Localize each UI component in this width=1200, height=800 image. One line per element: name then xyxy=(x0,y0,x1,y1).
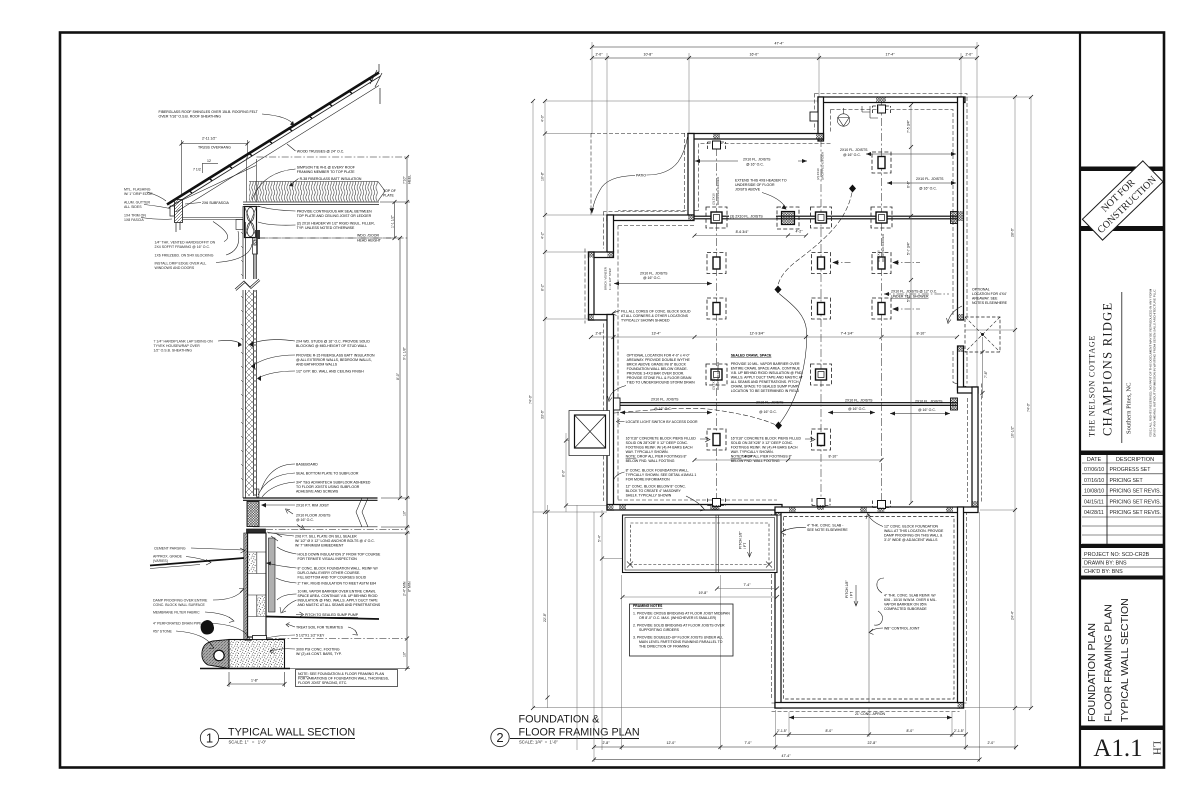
svg-text:6X6 - 10/10 W.W.M. OVER 6 MIL.: 6X6 - 10/10 W.W.M. OVER 6 MIL. xyxy=(884,598,937,602)
svg-text:FOR TERMITE VISUAL INSPECTION: FOR TERMITE VISUAL INSPECTION xyxy=(298,557,358,561)
svg-text:PRICING SET REVIS.: PRICING SET REVIS. xyxy=(1110,510,1162,516)
svg-text:2'-4" MIN: 2'-4" MIN xyxy=(403,581,407,596)
svg-text:CEMENT PARGING: CEMENT PARGING xyxy=(154,547,186,551)
svg-text:FOUNDATION WALL BELOW GRADE.: FOUNDATION WALL BELOW GRADE. xyxy=(627,367,688,371)
svg-text:6'-6": 6'-6" xyxy=(907,180,911,188)
svg-text:MEMBRANE FILTER FABRIC: MEMBRANE FILTER FABRIC xyxy=(153,611,200,615)
svg-text:DESCRIPTION: DESCRIPTION xyxy=(1116,457,1154,463)
svg-text:5'-7 3/4": 5'-7 3/4" xyxy=(907,241,911,255)
svg-text:7 1/2: 7 1/2 xyxy=(193,168,201,172)
svg-text:NOTE: DROP ALL PIER FOOTINGS 8: NOTE: DROP ALL PIER FOOTINGS 8" xyxy=(731,455,793,459)
svg-text:TRUSS OVERHANG: TRUSS OVERHANG xyxy=(198,146,231,150)
svg-text:7'-0": 7'-0" xyxy=(745,741,753,745)
svg-text:8'-10": 8'-10" xyxy=(917,332,927,336)
svg-text:5 1/2"X1 1/2" KEY: 5 1/2"X1 1/2" KEY xyxy=(296,634,325,638)
svg-text:21' CONC. APRON: 21' CONC. APRON xyxy=(855,712,886,716)
svg-text:BLOCK TO CREATE 4" MASONRY: BLOCK TO CREATE 4" MASONRY xyxy=(626,489,682,493)
svg-text:SHELF, TYPICALLY SHOWN: SHELF, TYPICALLY SHOWN xyxy=(626,494,672,498)
svg-text:13'-4": 13'-4" xyxy=(652,332,662,336)
svg-text:BELOW FND. WALL FOOTING: BELOW FND. WALL FOOTING xyxy=(731,459,780,463)
svg-text:8'-0": 8'-0" xyxy=(562,469,566,477)
svg-text:DUR-O-WAL EVERY OTHER COURSE.: DUR-O-WAL EVERY OTHER COURSE. xyxy=(298,571,361,575)
svg-text:74'-0": 74'-0" xyxy=(1027,402,1031,412)
svg-text:4'-0": 4'-0" xyxy=(541,114,545,122)
svg-text:@ 16" O.C.: @ 16" O.C. xyxy=(843,153,861,157)
svg-text:10 MIL VAPOR BARRIER OVER ENTI: 10 MIL VAPOR BARRIER OVER ENTIRE CRAWL xyxy=(298,590,376,594)
svg-text:8" CONC. BLOCK FOUNDATION WALL: 8" CONC. BLOCK FOUNDATION WALL. xyxy=(626,469,690,473)
svg-text:BASEBOARD: BASEBOARD xyxy=(296,463,318,467)
svg-text:22'-8": 22'-8" xyxy=(543,612,547,622)
svg-text:28'-6": 28'-6" xyxy=(1011,227,1015,237)
svg-text:4'-2": 4'-2" xyxy=(541,231,545,239)
svg-text:R-38 FIBERGLASS BATT INSULATIO: R-38 FIBERGLASS BATT INSULATION xyxy=(300,177,362,181)
svg-text:WAY. TYPICALLY SHOWN.: WAY. TYPICALLY SHOWN. xyxy=(626,450,669,454)
svg-text:THE DIRECTION OF FRAMING: THE DIRECTION OF FRAMING xyxy=(639,645,689,649)
svg-text:04/28/11: 04/28/11 xyxy=(1084,510,1104,516)
svg-text:2X10 FL. JOISTS: 2X10 FL. JOISTS xyxy=(651,398,679,402)
svg-text:PRICING SET: PRICING SET xyxy=(1110,478,1144,484)
svg-text:1X8 FASCIA: 1X8 FASCIA xyxy=(124,218,144,222)
svg-text:ENTIRE CRAWL SPACE AREA. CONTI: ENTIRE CRAWL SPACE AREA. CONTINUE xyxy=(731,367,801,371)
svg-text:DROPPED GIRDER: DROPPED GIRDER xyxy=(716,176,720,205)
svg-text:4" PERFORATED DRAIN PIPE: 4" PERFORATED DRAIN PIPE xyxy=(153,622,202,626)
svg-text:10": 10" xyxy=(403,510,407,516)
svg-text:19'-8": 19'-8" xyxy=(699,591,709,595)
svg-text:TYVEK HOUSEWRAP OVER: TYVEK HOUSEWRAP OVER xyxy=(154,344,201,348)
svg-text:NOTE: SEE FOUNDATION & FLOOR F: NOTE: SEE FOUNDATION & FLOOR FRAMING PLA… xyxy=(298,672,385,676)
svg-text:APPROX. GRADE: APPROX. GRADE xyxy=(153,555,183,559)
svg-text:MTL. FLASHING: MTL. FLASHING xyxy=(124,188,151,192)
svg-text:SPACE AREA. CONTINUE V.B. UP B: SPACE AREA. CONTINUE V.B. UP BEHIND RIGI… xyxy=(298,594,379,598)
svg-text:7'-6": 7'-6" xyxy=(984,370,988,378)
svg-text:9'-1 1/8": 9'-1 1/8" xyxy=(403,346,407,360)
svg-text:CRAWL SPACE TO SEALED SUMP PUM: CRAWL SPACE TO SEALED SUMP PUMP. xyxy=(731,385,799,389)
svg-text:SEAL BOTTOM PLATE TO SUBFLOOR: SEAL BOTTOM PLATE TO SUBFLOOR xyxy=(296,472,359,476)
svg-text:12: 12 xyxy=(207,159,211,163)
svg-text:@ 16" O.C.: @ 16" O.C. xyxy=(919,187,937,191)
svg-text:5'-1": 5'-1" xyxy=(907,294,911,302)
svg-text:BRICK ABOVE GRADE IN/ 8" BLOCK: BRICK ABOVE GRADE IN/ 8" BLOCK xyxy=(627,363,687,367)
svg-text:07/16/10: 07/16/10 xyxy=(1084,478,1104,484)
svg-text:2X16 FL. JOISTS: 2X16 FL. JOISTS xyxy=(756,401,784,405)
svg-text:V.B. UP BEHIND RIGID INSULATIO: V.B. UP BEHIND RIGID INSULATION @ FND. xyxy=(731,371,803,375)
svg-text:PROVIDE R-15 FIBERGLASS BATT I: PROVIDE R-15 FIBERGLASS BATT INSULATION xyxy=(296,354,375,358)
svg-text:TYPICALLY SHOWN. SEE DETAIL #1: TYPICALLY SHOWN. SEE DETAIL #1M/A1.1 xyxy=(626,473,697,477)
svg-text:OPTIONAL: OPTIONAL xyxy=(972,288,990,292)
svg-text:MAIN LEVEL PARTITIONS RUNNING: MAIN LEVEL PARTITIONS RUNNING PARALLEL T… xyxy=(639,640,723,644)
svg-text:AT ALL CORNERS & OTHER LOCATIO: AT ALL CORNERS & OTHER LOCATIONS xyxy=(621,314,689,318)
svg-text:TYPICAL WALL SECTION: TYPICAL WALL SECTION xyxy=(1119,598,1131,722)
svg-text:HOLD DOWN INSULATION 3" FROM T: HOLD DOWN INSULATION 3" FROM TOP COURSE xyxy=(298,553,382,557)
svg-text:@ 16" O.C.: @ 16" O.C. xyxy=(643,276,661,280)
svg-text:2'-1.5": 2'-1.5" xyxy=(777,729,788,733)
svg-text:(2) 2X10: (2) 2X10 xyxy=(816,168,820,180)
svg-text:SEALED CRAWL SPACE: SEALED CRAWL SPACE xyxy=(731,354,772,358)
svg-text:SIMPSON TIE #H1 @ EVERY ROOF: SIMPSON TIE #H1 @ EVERY ROOF xyxy=(297,166,355,170)
svg-text:SCALE: 1" = 1'-0": SCALE: 1" = 1'-0" xyxy=(229,740,267,745)
svg-text:W/ 7" MINIMUM EMBEDMENT: W/ 7" MINIMUM EMBEDMENT xyxy=(295,544,344,548)
svg-text:2X10 FL. JOISTS: 2X10 FL. JOISTS xyxy=(915,400,943,404)
svg-text:2X6 SUBFASCIA: 2X6 SUBFASCIA xyxy=(202,201,230,205)
svg-text:7'-5 3/4": 7'-5 3/4" xyxy=(907,119,911,133)
svg-text:8'-6 3/4": 8'-6 3/4" xyxy=(736,230,750,234)
svg-text:VAPOR BARRIER ON 95%: VAPOR BARRIER ON 95% xyxy=(884,603,927,607)
svg-text:BLOCKING @ MID-HEIGHT OF STUD: BLOCKING @ MID-HEIGHT OF STUD WALL xyxy=(296,344,367,348)
svg-text:24'-4": 24'-4" xyxy=(1011,610,1015,620)
svg-text:ALUM. GUTTER: ALUM. GUTTER xyxy=(124,201,151,205)
svg-text:BRICK VENEER: BRICK VENEER xyxy=(604,266,608,290)
svg-text:W/ 1/2" Ø X 12" LONG ANCHOR BO: W/ 1/2" Ø X 12" LONG ANCHOR BOLTS @ 4' O… xyxy=(295,539,375,543)
svg-text:12'-0": 12'-0" xyxy=(667,741,677,745)
svg-text:4'-2": 4'-2" xyxy=(796,230,804,234)
svg-text:SUPPORTING GIRDERS: SUPPORTING GIRDERS xyxy=(639,628,680,632)
svg-text:TREAT SOIL FOR TERMITES: TREAT SOIL FOR TERMITES xyxy=(296,626,344,630)
svg-text:2X4 WD. STUDS @ 16" O.C. PROVI: 2X4 WD. STUDS @ 16" O.C. PROVIDE SOLID xyxy=(296,340,370,344)
svg-text:OVER 7/16" O.S.B. ROOF SHEATHI: OVER 7/16" O.S.B. ROOF SHEATHING xyxy=(159,115,222,119)
svg-text:3. PROVIDE DOUBLED-UP FLOOR J: 3. PROVIDE DOUBLED-UP FLOOR JOISTS UNDER… xyxy=(633,636,723,640)
svg-text:2'-0": 2'-0" xyxy=(966,53,974,57)
svg-text:LH: LH xyxy=(1151,741,1162,755)
svg-text:10'-8": 10'-8" xyxy=(541,171,545,181)
svg-text:TYP. UNLESS NOTED OTHERWISE: TYP. UNLESS NOTED OTHERWISE xyxy=(297,226,355,230)
svg-text:8" MIN: 8" MIN xyxy=(408,581,412,592)
svg-text:WDO. /DOOR: WDO. /DOOR xyxy=(357,234,379,238)
svg-text:2X10 FL. JOISTS: 2X10 FL. JOISTS xyxy=(640,272,668,276)
svg-text:FOR VARIATIONS OF FOUNDATION W: FOR VARIATIONS OF FOUNDATION WALL THICKN… xyxy=(298,677,389,681)
svg-text:74'-0": 74'-0" xyxy=(529,394,533,404)
svg-text:W/ (2) #4 CONT. BARS, TYP.: W/ (2) #4 CONT. BARS, TYP. xyxy=(296,652,342,656)
svg-text:DAMP PROOFING OVER ENTIRE: DAMP PROOFING OVER ENTIRE xyxy=(153,599,208,603)
svg-text:1/2" O.S.B. SHEATHING: 1/2" O.S.B. SHEATHING xyxy=(154,349,193,353)
svg-text:16'-1/2": 16'-1/2" xyxy=(1011,425,1015,438)
svg-text:BELOW FND. WALL FOOTING: BELOW FND. WALL FOOTING xyxy=(626,459,675,463)
svg-text:8'-0": 8'-0" xyxy=(396,372,400,380)
svg-text:7'10": 7'10" xyxy=(403,175,407,184)
svg-text:EXTEND THIS 4X8 HEADER TO: EXTEND THIS 4X8 HEADER TO xyxy=(735,179,787,183)
svg-text:04/15/11: 04/15/11 xyxy=(1084,499,1104,505)
svg-text:PROVIDE CONTINUOUS AIR SEAL BE: PROVIDE CONTINUOUS AIR SEAL BETWEEN xyxy=(297,210,372,214)
svg-text:7'-4": 7'-4" xyxy=(744,583,752,587)
svg-text:UNDERSIDE OF FLOOR: UNDERSIDE OF FLOOR xyxy=(735,183,775,187)
svg-text:AND BATHROOM WALLS: AND BATHROOM WALLS xyxy=(296,363,338,367)
svg-text:ALL SIDES: ALL SIDES xyxy=(124,205,142,209)
svg-text:PITCH TO SEALED SUMP PUMP: PITCH TO SEALED SUMP PUMP xyxy=(305,613,359,617)
svg-text:DATE: DATE xyxy=(1087,457,1102,463)
svg-text:OPTIONAL LOCATION FOR 4'-0" x: OPTIONAL LOCATION FOR 4'-0" x 4'-0" xyxy=(627,354,691,358)
svg-text:(VARIES): (VARIES) xyxy=(153,559,168,563)
svg-text:3'-0" WIDE @ ADJACENT WALLS: 3'-0" WIDE @ ADJACENT WALLS xyxy=(884,538,938,542)
svg-text:#57 STONE: #57 STONE xyxy=(153,630,172,634)
svg-text:PLATE: PLATE xyxy=(383,194,394,198)
svg-text:PROGRESS SET: PROGRESS SET xyxy=(1110,467,1152,473)
svg-text:TYPICAL WALL SECTION: TYPICAL WALL SECTION xyxy=(228,726,355,738)
svg-text:8'-0": 8'-0" xyxy=(826,729,834,733)
svg-text:AND MASTIC AT ALL SEAMS AND PE: AND MASTIC AT ALL SEAMS AND PENETRATIONS xyxy=(298,603,381,607)
svg-text:PROVIDE STONE FILL & FLOOR DRA: PROVIDE STONE FILL & FLOOR DRAIN xyxy=(627,376,692,380)
svg-text:2X10 FL. JOISTS @ 12" O.C.: 2X10 FL. JOISTS @ 12" O.C. xyxy=(891,290,937,294)
svg-text:COMPACTED SUBGRADE: COMPACTED SUBGRADE xyxy=(884,607,927,611)
svg-text:OR 8'-0" O.C. MAX. (WHICHEVER: OR 8'-0" O.C. MAX. (WHICHEVER IS SMALLER… xyxy=(639,616,716,620)
svg-text:2X6 P.T. SILL PLATE ON SILL SE: 2X6 P.T. SILL PLATE ON SILL SEALER xyxy=(295,535,357,539)
svg-text:5'-4": 5'-4" xyxy=(598,534,602,542)
svg-text:8'-0": 8'-0" xyxy=(907,729,915,733)
svg-text:(2) 2X10: (2) 2X10 xyxy=(712,193,716,205)
svg-text:DROPPED GIRDER: DROPPED GIRDER xyxy=(821,151,825,180)
svg-text:2X10 FL. JOISTS: 2X10 FL. JOISTS xyxy=(840,148,868,152)
svg-text:@ 16" O.C.: @ 16" O.C. xyxy=(848,407,866,411)
svg-text:WALL AT THIS LOCATION. PROVIDE: WALL AT THIS LOCATION. PROVIDE xyxy=(884,529,944,533)
svg-text:WOOD TRUSSES @ 24" O.C.: WOOD TRUSSES @ 24" O.C. xyxy=(297,150,345,154)
svg-text:7'-4 1/4": 7'-4 1/4" xyxy=(841,332,855,336)
svg-text:2X10 P.T. RIM JOIST: 2X10 P.T. RIM JOIST xyxy=(296,504,330,508)
svg-text:TIED TO UNDERGROUND STORM DRAI: TIED TO UNDERGROUND STORM DRAIN xyxy=(627,381,696,385)
svg-text:LOCATE LIGHT SWITCH BY ACCESS: LOCATE LIGHT SWITCH BY ACCESS DOOR xyxy=(626,420,698,424)
svg-text:2'-1.5": 2'-1.5" xyxy=(954,729,965,733)
svg-text:1X4 TRIM ON: 1X4 TRIM ON xyxy=(124,214,146,218)
svg-text:PITCH 1/8": PITCH 1/8" xyxy=(845,580,849,598)
svg-text:FIBERGLASS ROOF SHINGLES OVER: FIBERGLASS ROOF SHINGLES OVER 15LB. ROOF… xyxy=(159,110,259,114)
svg-text:22'-8": 22'-8" xyxy=(868,741,878,745)
svg-text:JOISTS ABOVE: JOISTS ABOVE xyxy=(735,188,761,192)
svg-text:FLOOR JOIST SPACING, ETC.: FLOOR JOIST SPACING, ETC. xyxy=(298,681,347,685)
svg-text:@ ALL EXTERIOR WALLS, BEDROOM: @ ALL EXTERIOR WALLS, BEDROOM WALLS, xyxy=(296,358,372,362)
svg-text:SEE NOTE ELSEWHERE: SEE NOTE ELSEWHERE xyxy=(807,528,848,532)
svg-text:DAMP PROOFING ON THIS WALL &: DAMP PROOFING ON THIS WALL & xyxy=(884,534,943,538)
svg-text:CHK'D BY: BNS: CHK'D BY: BNS xyxy=(1084,569,1123,575)
svg-text:AREAWAY. PROVIDE DOUBLE WYTHE: AREAWAY. PROVIDE DOUBLE WYTHE xyxy=(627,358,691,362)
svg-text:FOOTINGS REINF. W/ (4) #4 BARS: FOOTINGS REINF. W/ (4) #4 BARS EACH xyxy=(626,446,693,450)
svg-text:16"X16" CONCRETE BLOCK PIERS F: 16"X16" CONCRETE BLOCK PIERS FILLED xyxy=(731,437,802,441)
svg-text:FILL ALL CORES OF CONC. BLOCK: FILL ALL CORES OF CONC. BLOCK SOLID xyxy=(621,310,691,314)
svg-text:3000 PSI CONC. FOOTING: 3000 PSI CONC. FOOTING xyxy=(296,648,340,652)
svg-text:LOCATION FOR 4'X4': LOCATION FOR 4'X4' xyxy=(972,292,1007,296)
svg-text:WALLS. APPLY DUCT TAPE AND MAS: WALLS. APPLY DUCT TAPE AND MASTIC AT xyxy=(731,376,804,380)
svg-text:W8" CONTROL JOINT: W8" CONTROL JOINT xyxy=(884,627,920,631)
svg-text:12" CONC. BLOCK FOUNDATION: 12" CONC. BLOCK FOUNDATION xyxy=(884,525,939,529)
svg-text:@ 16" O.C.: @ 16" O.C. xyxy=(918,408,936,412)
svg-text:10/08/10: 10/08/10 xyxy=(1084,489,1104,495)
svg-text:47'-4": 47'-4" xyxy=(782,754,792,758)
svg-text:2X4 SOFFIT FRAMING @ 16" O.C.: 2X4 SOFFIT FRAMING @ 16" O.C. xyxy=(155,245,211,249)
svg-text:1'-1 1/2": 1'-1 1/2" xyxy=(391,214,395,228)
svg-text:ALL SEAMS AND PENETRATIONS. PI: ALL SEAMS AND PENETRATIONS. PITCH xyxy=(731,380,799,384)
svg-text:2. PROVIDE SOLID BRIDGING AT: 2. PROVIDE SOLID BRIDGING AT FLOOR JOIST… xyxy=(633,624,725,628)
svg-text:PROJECT NO: SCD-CR2B: PROJECT NO: SCD-CR2B xyxy=(1084,552,1150,558)
svg-text:1: 1 xyxy=(206,731,213,746)
svg-text:2'-8": 2'-8" xyxy=(596,332,604,336)
svg-text:17'-4": 17'-4" xyxy=(886,53,896,57)
svg-text:2: 2 xyxy=(496,730,503,745)
svg-text:CHAMPIONS RIDGE: CHAMPIONS RIDGE xyxy=(1101,302,1115,436)
svg-text:OR BY ANY MEANS, WITHOUT PERMI: OR BY ANY MEANS, WITHOUT PERMISSION IN W… xyxy=(1153,289,1157,437)
svg-text:2X10 FL. JOISTS: 2X10 FL. JOISTS xyxy=(916,177,944,181)
svg-text:DROPPED GIRDER: DROPPED GIRDER xyxy=(881,233,885,262)
svg-text:07/06/10: 07/06/10 xyxy=(1084,467,1104,473)
svg-text:(3) 2X10 FL. JOISTS: (3) 2X10 FL. JOISTS xyxy=(730,215,763,219)
svg-text:DROPPED GIRDER: DROPPED GIRDER xyxy=(716,361,720,390)
svg-text:12'-9 3/4": 12'-9 3/4" xyxy=(750,332,766,336)
svg-text:(2) 2X10 HEADER W/ 1/2" RIGID: (2) 2X10 HEADER W/ 1/2" RIGID INSUL. FIL… xyxy=(297,222,375,226)
svg-text:PROVIDE 10 MIL. VAPOR BARRIER: PROVIDE 10 MIL. VAPOR BARRIER OVER xyxy=(731,362,800,366)
svg-text:WINDOWS AND DOORS: WINDOWS AND DOORS xyxy=(155,266,195,270)
svg-text:47'-4": 47'-4" xyxy=(775,42,785,46)
svg-text:SOLID ON 28"X28" X 12" DEEP CO: SOLID ON 28"X28" X 12" DEEP CONC. xyxy=(626,441,688,445)
svg-text:PROVIDE 3-4X3 BAR OVER DOOR.: PROVIDE 3-4X3 BAR OVER DOOR. xyxy=(627,372,685,376)
svg-text:FOOTINGS REINF. W/ (4) #4 BARS: FOOTINGS REINF. W/ (4) #4 BARS EACH xyxy=(731,446,798,450)
svg-text:TOP PLATE AND CEILING JOIST OR: TOP PLATE AND CEILING JOIST OR LEDGER xyxy=(297,214,372,218)
svg-text:FRAMING MEMBER TO TOP PLATE: FRAMING MEMBER TO TOP PLATE xyxy=(297,170,356,174)
svg-text:FLOOR FRAMING PLAN: FLOOR FRAMING PLAN xyxy=(1103,604,1115,722)
svg-text:SOLID ON 28"X28" X 12" DEEP CO: SOLID ON 28"X28" X 12" DEEP CONC. xyxy=(731,441,793,445)
svg-text:CONC. BLOCK WALL SURFACE: CONC. BLOCK WALL SURFACE xyxy=(153,603,206,607)
svg-text:A1.1: A1.1 xyxy=(1093,735,1142,762)
svg-text:10": 10" xyxy=(403,651,407,657)
svg-text:HEAD HEIGHT: HEAD HEIGHT xyxy=(357,239,382,243)
svg-text:@ 16" O.C.: @ 16" O.C. xyxy=(296,518,314,522)
svg-text:INSTALL DRIP EDGE OVER ALL: INSTALL DRIP EDGE OVER ALL xyxy=(155,262,207,266)
svg-text:AREAWAY. SEE: AREAWAY. SEE xyxy=(972,297,998,301)
svg-text:2X10 FLOOR JOISTS: 2X10 FLOOR JOISTS xyxy=(296,514,331,518)
svg-text:ADHESIVE AND SCREWS: ADHESIVE AND SCREWS xyxy=(296,490,339,494)
svg-text:TYPICALLY SHOWN SHADED: TYPICALLY SHOWN SHADED xyxy=(621,319,670,323)
svg-text:16"X16" CONCRETE BLOCK PIERS F: 16"X16" CONCRETE BLOCK PIERS FILLED xyxy=(626,437,697,441)
svg-text:SCALE: 1/4" = 1'-0": SCALE: 1/4" = 1'-0" xyxy=(519,740,558,745)
svg-text:FOUNDATION PLAN: FOUNDATION PLAN xyxy=(1086,623,1098,722)
svg-text:8'-10": 8'-10" xyxy=(829,455,839,459)
svg-text:FOR MORE INFORMATION: FOR MORE INFORMATION xyxy=(626,478,671,482)
svg-text:2" THK. RIGID INSULATION TO ME: 2" THK. RIGID INSULATION TO MEET ASTM E8… xyxy=(298,582,377,586)
svg-text:(2) 2X10: (2) 2X10 xyxy=(877,250,881,262)
svg-text:PITCH 1/8": PITCH 1/8" xyxy=(739,531,743,549)
svg-text:PRICING SET REVIS.: PRICING SET REVIS. xyxy=(1110,489,1162,495)
svg-text:1/4" THK. VENTED HARDISOFFIT O: 1/4" THK. VENTED HARDISOFFIT ON xyxy=(155,241,216,245)
svg-text:FILL BOTTOM AND TOP COURSES SO: FILL BOTTOM AND TOP COURSES SOLID xyxy=(298,576,367,580)
svg-text:FOUNDATION &: FOUNDATION & xyxy=(519,714,601,726)
svg-text:2'-8": 2'-8" xyxy=(603,741,611,745)
svg-text:TO FLOOR JOISTS USING SUBFLOOR: TO FLOOR JOISTS USING SUBFLOOR xyxy=(296,485,360,489)
svg-text:4" THK. CONC. SLAB -: 4" THK. CONC. SLAB - xyxy=(807,524,844,528)
svg-text:LOCATION TO BE DETERMINED IN F: LOCATION TO BE DETERMINED IN FIELD xyxy=(731,389,800,393)
svg-text:Southern Pines, NC: Southern Pines, NC xyxy=(1126,383,1133,434)
svg-text:TOP OF: TOP OF xyxy=(383,189,396,193)
svg-text:WAY. TYPICALLY SHOWN.: WAY. TYPICALLY SHOWN. xyxy=(731,450,774,454)
svg-text:1. PROVIDE CROSS BRIDGING AT: 1. PROVIDE CROSS BRIDGING AT FLOOR JOIST… xyxy=(633,612,730,616)
svg-text:NOTES ELSEWHERE: NOTES ELSEWHERE xyxy=(972,301,1008,305)
svg-text:1'-8": 1'-8" xyxy=(251,679,259,683)
svg-text:7 1/4" HARDIPLANK LAP SIDING O: 7 1/4" HARDIPLANK LAP SIDING ON xyxy=(154,340,214,344)
svg-text:12" CONC. BLOCK BELOW 8" CONC.: 12" CONC. BLOCK BELOW 8" CONC. xyxy=(626,485,686,489)
svg-text:33'-6": 33'-6" xyxy=(541,409,545,419)
svg-text:PRICING SET REVIS.: PRICING SET REVIS. xyxy=(1110,499,1162,505)
svg-text:@ 16" O.C.: @ 16" O.C. xyxy=(746,163,764,167)
svg-text:8'-2": 8'-2" xyxy=(541,283,545,291)
svg-text:THE NELSON COTTAGE: THE NELSON COTTAGE xyxy=(1088,335,1097,437)
svg-text:NOTE: DROP ALL PIER FOOTINGS 8: NOTE: DROP ALL PIER FOOTINGS 8" xyxy=(626,455,688,459)
svg-text:/ FT: / FT xyxy=(743,542,747,549)
svg-text:1/2" GYP. BD. WALL AND CEILING: 1/2" GYP. BD. WALL AND CEILING FINISH xyxy=(296,370,364,374)
svg-text:8" CONC. BLOCK FOUNDATION WALL: 8" CONC. BLOCK FOUNDATION WALL. REINF W/ xyxy=(298,567,378,571)
svg-text:1'-10 1/2" STEP: 1'-10 1/2" STEP xyxy=(608,268,612,290)
svg-text:4" THK. CONC. SLAB REINF. W/: 4" THK. CONC. SLAB REINF. W/ xyxy=(884,594,936,598)
svg-text:16'-0": 16'-0" xyxy=(750,53,760,57)
svg-text:@ 16" O.C.: @ 16" O.C. xyxy=(759,410,777,414)
svg-text:10'-8": 10'-8" xyxy=(644,53,654,57)
svg-text:INSULATION @ FND. WALLS. APPLY: INSULATION @ FND. WALLS. APPLY DUCT TAPE xyxy=(298,599,379,603)
svg-text:HEEL: HEEL xyxy=(408,175,412,184)
svg-text:2'-11 1/2": 2'-11 1/2" xyxy=(202,137,217,141)
svg-text:DRAWN BY: BNS: DRAWN BY: BNS xyxy=(1084,561,1127,567)
svg-text:3/4" T&G ADVANTECH SUBFLOOR AD: 3/4" T&G ADVANTECH SUBFLOOR ADHERED xyxy=(296,481,371,485)
svg-text:2X10 FL. JOISTS: 2X10 FL. JOISTS xyxy=(743,158,771,162)
svg-text:2X10 FL. JOISTS: 2X10 FL. JOISTS xyxy=(845,399,873,403)
svg-text:(2) 2X10: (2) 2X10 xyxy=(712,378,716,390)
svg-text:1X6 FRIEZEBD. ON 5/4X BLOCKING: 1X6 FRIEZEBD. ON 5/4X BLOCKING xyxy=(155,254,214,258)
svg-text:FRAMING NOTES: FRAMING NOTES xyxy=(633,604,663,608)
svg-text:2'-0": 2'-0" xyxy=(596,53,604,57)
svg-text:2'-0": 2'-0" xyxy=(988,741,996,745)
svg-text:/ FT: / FT xyxy=(850,591,854,598)
svg-text:PATIO: PATIO xyxy=(636,174,646,178)
